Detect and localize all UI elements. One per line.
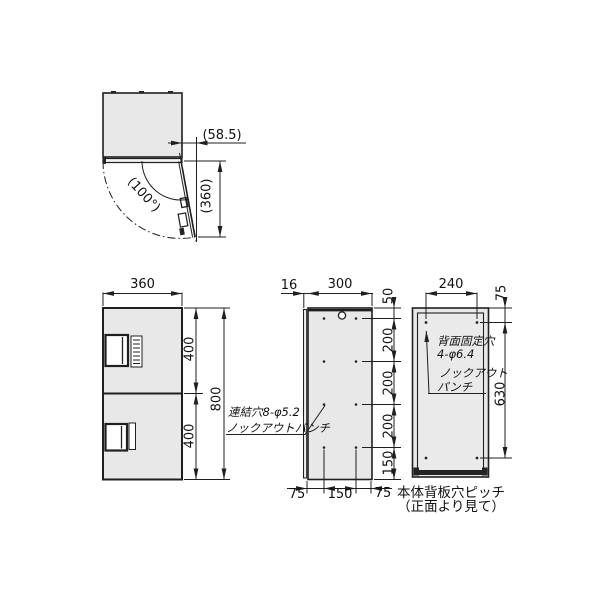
hole-dot xyxy=(323,446,326,449)
dim-protrusion: (58.5) xyxy=(202,128,241,143)
side-view: 16 300 50 200 200 200 150 75 150 75 連結穴8… xyxy=(226,277,401,502)
dim-pitch-bottom: 150 xyxy=(382,451,397,476)
note-hole-size: 4-φ6.4 xyxy=(437,347,474,361)
dim-upper-height: 400 xyxy=(183,337,198,362)
fixing-hole xyxy=(425,457,428,460)
knockout-ring xyxy=(338,312,345,319)
dim-hole-offset-top: 75 xyxy=(495,285,510,302)
dim-pitch-2: 200 xyxy=(382,371,397,396)
corner-foot xyxy=(414,468,420,476)
dim-bottom-right: 75 xyxy=(375,486,392,501)
hole-dot xyxy=(355,446,358,449)
technical-drawing-page: (58.5) (100°) (360) 360 xyxy=(0,0,600,600)
corner-foot xyxy=(482,468,488,476)
caption-viewed-from-front: （正面より見て） xyxy=(397,499,505,515)
side-outline xyxy=(308,308,372,480)
dim-width: 360 xyxy=(130,277,155,292)
note-back-fixing-holes: 背面固定穴 xyxy=(437,334,496,348)
dim-lower-height: 400 xyxy=(183,424,198,449)
dim-bottom-center: 150 xyxy=(328,487,353,502)
top-plan-view: (58.5) (100°) (360) xyxy=(103,91,246,243)
dim-front-offset: 16 xyxy=(281,278,298,293)
door-handle-detail xyxy=(180,198,187,208)
body-top-outline xyxy=(103,93,182,157)
dimension-drawing: (58.5) (100°) (360) 360 xyxy=(0,0,600,600)
dim-pitch-1: 200 xyxy=(382,328,397,353)
bottom-rail xyxy=(418,470,484,475)
dim-bottom-left: 75 xyxy=(289,487,306,502)
dim-open-angle: (100°) xyxy=(124,175,163,216)
hole-dot xyxy=(355,403,358,406)
dim-total-height: 800 xyxy=(210,387,225,412)
lower-handle xyxy=(106,424,128,451)
front-view: 360 400 400 800 xyxy=(103,277,230,480)
back-view: 240 75 630 背面固定穴 4-φ6.4 ノックアウト パンチ 本体背板穴… xyxy=(397,277,512,515)
lower-handle-strip xyxy=(129,423,136,450)
note-knockout: ノックアウト xyxy=(439,366,508,380)
dim-hole-pitch-height: 630 xyxy=(494,382,509,407)
fixing-hole xyxy=(476,321,479,324)
dim-pitch-3: 200 xyxy=(382,414,397,439)
hole-dot xyxy=(323,360,326,363)
hole-dot xyxy=(355,317,358,320)
label-text-texture xyxy=(133,340,140,364)
dim-door-length: (360) xyxy=(200,179,215,214)
fixing-hole xyxy=(476,457,479,460)
dim-pitch-top: 50 xyxy=(382,288,397,305)
door-panel-side xyxy=(304,310,307,479)
hinge-tick xyxy=(111,91,116,94)
fixing-hole xyxy=(425,321,428,324)
hinge-tick xyxy=(139,91,144,94)
hole-dot xyxy=(323,317,326,320)
note-knockout-punch: ノックアウトパンチ xyxy=(226,421,330,435)
hinge-tick xyxy=(168,91,173,94)
note-punch: パンチ xyxy=(437,380,473,394)
door-lock-detail xyxy=(178,213,188,227)
dim-depth: 300 xyxy=(328,277,353,292)
note-connecting-holes: 連結穴8-φ5.2 xyxy=(228,405,300,419)
door-lock-mark xyxy=(179,228,185,236)
hole-dot xyxy=(355,360,358,363)
upper-handle xyxy=(106,335,129,366)
dim-hole-pitch-width: 240 xyxy=(439,277,464,292)
hole-dot xyxy=(323,403,326,406)
